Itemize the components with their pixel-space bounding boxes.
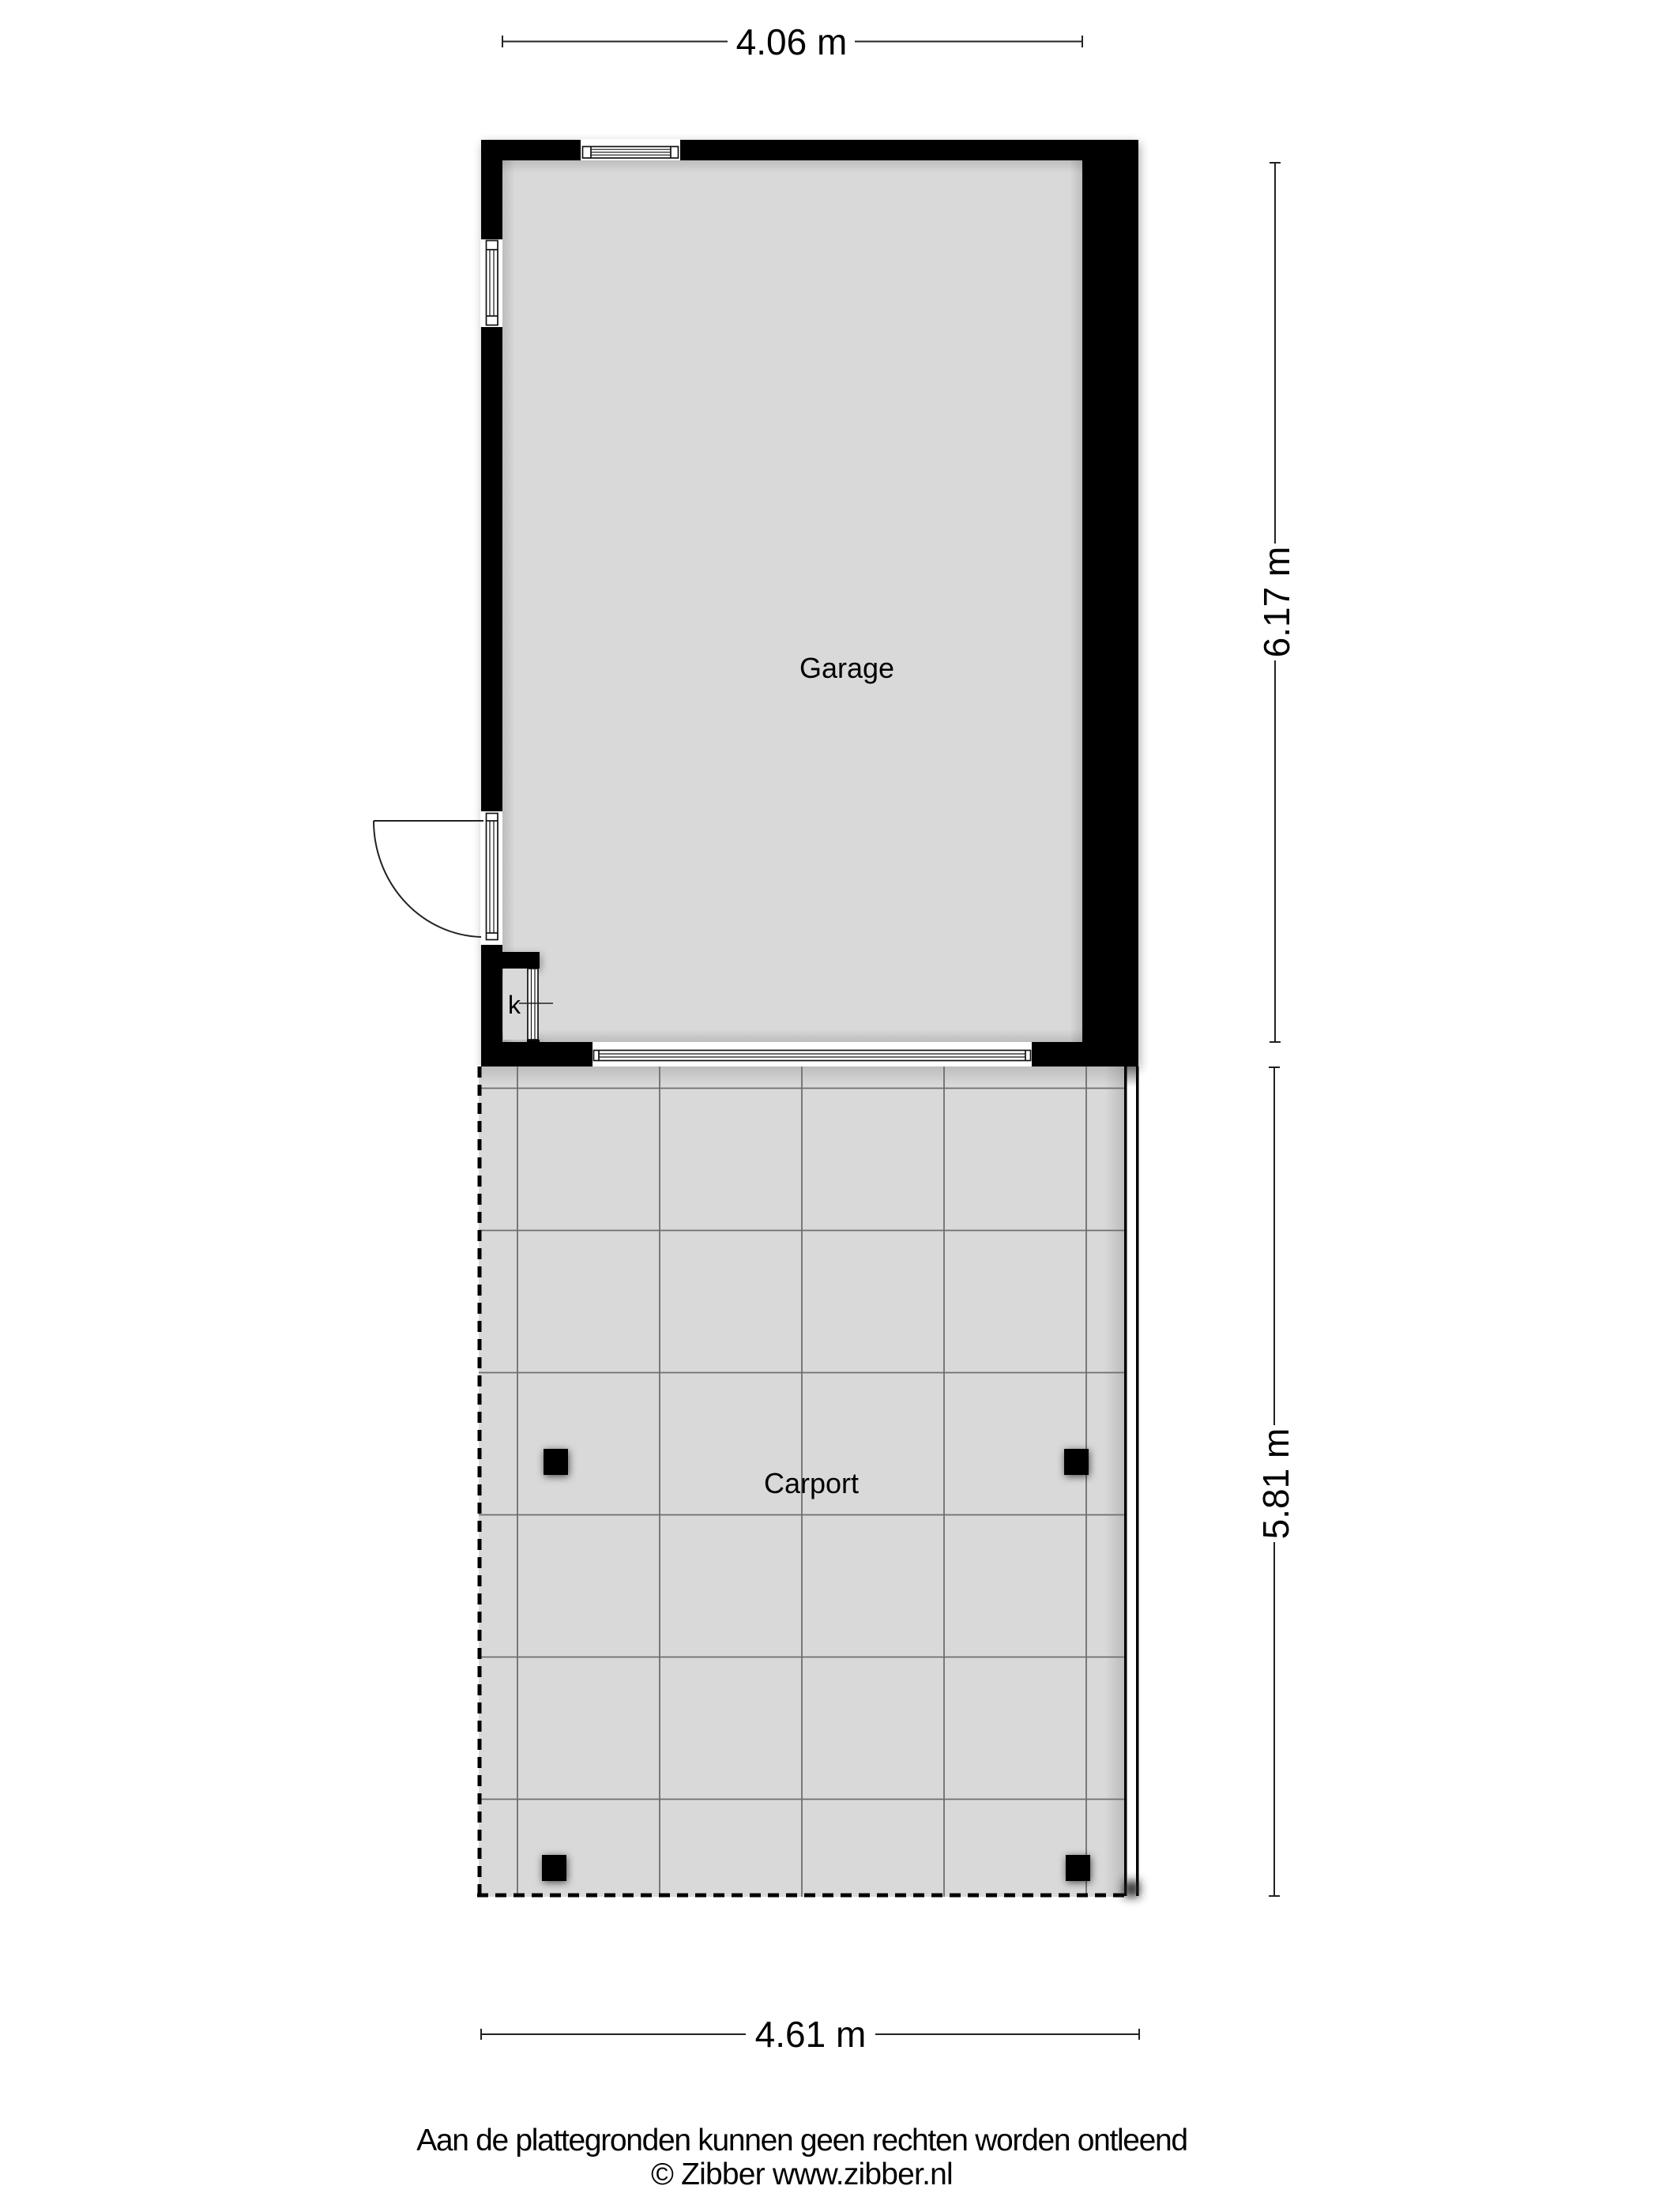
svg-text:© Zibber www.zibber.nl: © Zibber www.zibber.nl (651, 2157, 953, 2191)
svg-text:4.61 m: 4.61 m (755, 2014, 867, 2055)
svg-text:Aan de plattegronden kunnen ge: Aan de plattegronden kunnen geen rechten… (416, 2124, 1187, 2157)
svg-text:Carport: Carport (764, 1467, 859, 1499)
svg-text:k: k (508, 991, 521, 1019)
svg-text:6.17 m: 6.17 m (1256, 547, 1297, 658)
svg-text:5.81 m: 5.81 m (1255, 1428, 1296, 1540)
svg-text:Garage: Garage (799, 652, 894, 684)
svg-text:4.06 m: 4.06 m (736, 21, 848, 62)
